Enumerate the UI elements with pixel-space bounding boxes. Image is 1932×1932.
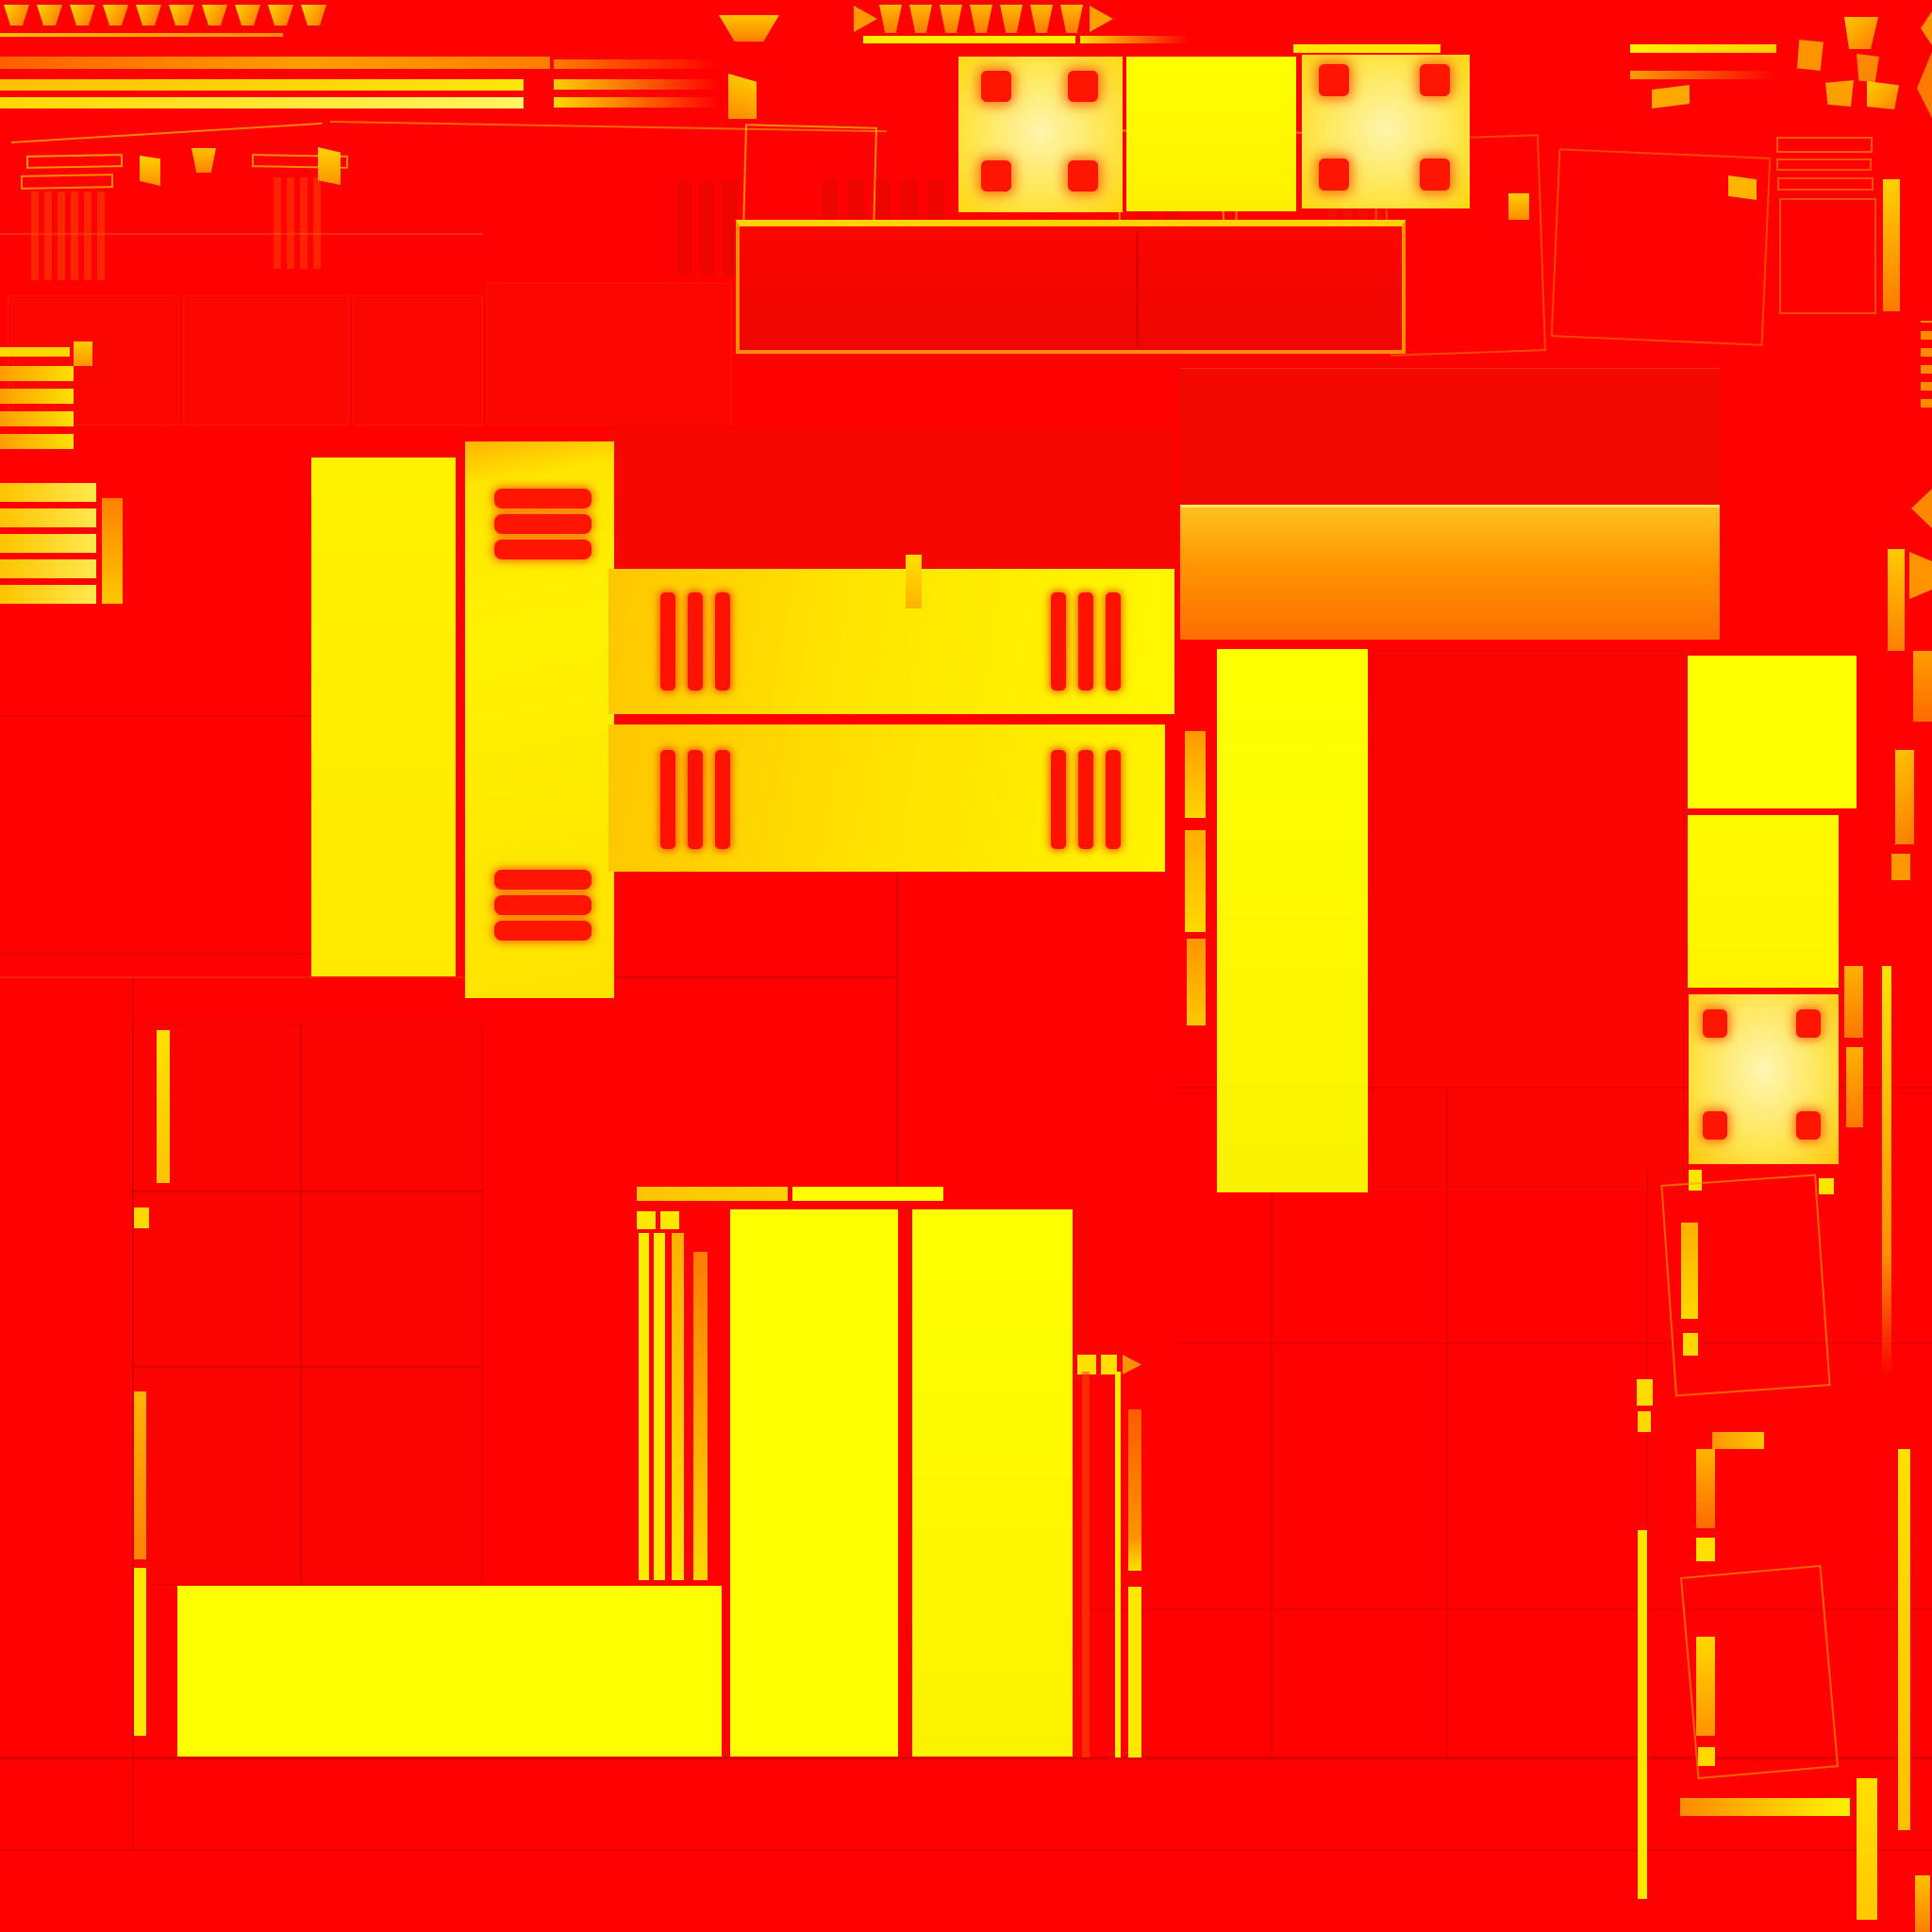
seam-line xyxy=(300,1024,302,1585)
tooth xyxy=(1030,5,1053,33)
sliver xyxy=(1895,750,1914,844)
sliver xyxy=(1683,1333,1698,1356)
edge-notch xyxy=(1913,651,1932,722)
gradient-bar xyxy=(0,508,96,527)
yellow-plate xyxy=(1688,656,1857,808)
rivet-plate-pip xyxy=(1796,1009,1821,1038)
hairline-bar xyxy=(1293,44,1441,53)
red-bar xyxy=(1106,750,1121,849)
hairline-bar xyxy=(0,347,70,357)
sliver xyxy=(1696,1637,1715,1736)
seam-line xyxy=(1446,1087,1448,1757)
tooth xyxy=(970,5,992,33)
sliver xyxy=(672,1233,684,1580)
sliver xyxy=(1891,854,1910,880)
fade-stripe xyxy=(554,97,720,108)
seam-line xyxy=(0,953,311,955)
seam-line xyxy=(896,873,898,1187)
wedge xyxy=(728,74,757,119)
rivet-plate-pip xyxy=(1703,1009,1727,1038)
sliver xyxy=(906,555,922,608)
pillar xyxy=(84,192,92,280)
rivet-plate-pip xyxy=(1420,64,1450,96)
red-panel xyxy=(8,295,179,425)
red-panel xyxy=(132,1024,483,1585)
pillar xyxy=(313,177,321,269)
sliver xyxy=(1898,1449,1910,1830)
sliver xyxy=(660,1211,679,1229)
pillar xyxy=(274,177,281,269)
red-bar xyxy=(494,540,591,559)
bordered-box xyxy=(736,220,1406,354)
wedge xyxy=(1857,54,1879,82)
sliver xyxy=(134,1568,146,1736)
rivet-plate-pip xyxy=(981,71,1011,102)
sliver xyxy=(1888,549,1905,651)
outline-quad xyxy=(1779,198,1876,314)
red-panel xyxy=(1373,651,1684,1192)
sliver xyxy=(1115,1372,1121,1757)
red-panel xyxy=(353,295,483,425)
gradient-bar xyxy=(0,585,96,604)
pillar xyxy=(97,192,105,280)
sliver xyxy=(1819,1178,1834,1194)
sliver xyxy=(1857,1778,1877,1920)
sliver xyxy=(1883,179,1900,311)
wedge xyxy=(1797,40,1824,71)
red-bar xyxy=(1051,592,1066,691)
red-panel xyxy=(183,295,349,425)
red-bar xyxy=(660,592,675,691)
gradient-bar xyxy=(0,389,74,404)
tooth xyxy=(136,5,161,25)
sliver xyxy=(693,1252,708,1580)
red-panel xyxy=(1180,368,1720,506)
gradient-band xyxy=(0,57,550,69)
wedge xyxy=(1825,80,1854,107)
pillar xyxy=(677,181,691,275)
wedge xyxy=(318,147,341,185)
tooth xyxy=(301,5,326,25)
pillar xyxy=(723,181,737,275)
rivet-plate-pip xyxy=(981,160,1011,192)
tooth xyxy=(4,5,29,25)
gradient-bar xyxy=(0,411,74,426)
red-bar xyxy=(494,489,591,508)
tooth xyxy=(940,5,962,33)
red-bar xyxy=(688,592,703,691)
seam-line xyxy=(132,1191,483,1192)
sliver xyxy=(134,1207,149,1228)
sliver xyxy=(102,498,123,604)
sliver xyxy=(654,1233,665,1580)
sliver xyxy=(1915,1875,1930,1932)
sliver xyxy=(1185,830,1206,932)
tooth xyxy=(169,5,194,25)
gradient-bar xyxy=(0,534,96,553)
sliver xyxy=(1844,966,1863,1038)
arrow-glyph xyxy=(854,6,877,32)
tooth-large xyxy=(719,15,779,42)
wedge xyxy=(1844,17,1878,49)
edge-notch xyxy=(1123,1355,1141,1374)
yellow-door xyxy=(730,1209,898,1757)
gradient-band xyxy=(0,79,524,91)
seam-line xyxy=(132,1366,483,1368)
sliver xyxy=(1638,1530,1647,1899)
yellow-column xyxy=(1217,649,1368,1192)
hairline-bar xyxy=(863,36,1075,43)
orange-gradient-box xyxy=(1180,505,1720,640)
rivet-plate-pip xyxy=(1319,158,1349,191)
sliver xyxy=(74,341,92,366)
sliver xyxy=(1696,1449,1715,1528)
tooth xyxy=(1000,5,1023,33)
hairline-bar xyxy=(637,1187,788,1201)
tooth xyxy=(70,5,95,25)
red-bar xyxy=(688,750,703,849)
seam-line xyxy=(0,715,311,717)
outline-bar xyxy=(1777,177,1874,191)
tooth xyxy=(909,5,932,33)
texture-atlas-canvas xyxy=(0,0,1932,1932)
tooth xyxy=(103,5,128,25)
sliver xyxy=(1846,1047,1863,1127)
tooth xyxy=(879,5,902,33)
pillar xyxy=(31,192,39,280)
gradient-band xyxy=(1712,1432,1764,1449)
outline-bar xyxy=(1776,137,1873,153)
sliver xyxy=(1637,1379,1653,1406)
hairline-bar xyxy=(1630,44,1776,53)
wedge xyxy=(1652,85,1690,108)
sliver xyxy=(134,1391,146,1559)
tooth xyxy=(235,5,260,25)
arrow-glyph xyxy=(1090,6,1113,32)
sliver xyxy=(1187,939,1206,1025)
rivet-plate-pip xyxy=(1420,158,1450,191)
sliver xyxy=(1681,1223,1698,1319)
tooth xyxy=(202,5,227,25)
sliver xyxy=(1128,1409,1141,1571)
pillar xyxy=(44,192,52,280)
edge-notch xyxy=(1917,52,1932,118)
fade-stripe xyxy=(554,59,720,69)
red-bar xyxy=(494,514,591,534)
sliver xyxy=(637,1211,656,1229)
yellow-plate xyxy=(1126,57,1296,211)
wedge xyxy=(1508,193,1529,220)
sliver xyxy=(1882,966,1891,1377)
gradient-band xyxy=(1680,1798,1850,1816)
pillar xyxy=(71,192,78,280)
sliver xyxy=(1128,1587,1141,1757)
red-bar xyxy=(1078,592,1093,691)
sliver xyxy=(639,1233,649,1580)
rivet-plate-pip xyxy=(1796,1111,1821,1140)
seam-line xyxy=(0,976,481,978)
wedge xyxy=(1728,175,1757,200)
red-bar xyxy=(1106,592,1121,691)
red-panel xyxy=(487,283,732,425)
sliver xyxy=(1082,1372,1090,1757)
outline-bar xyxy=(26,154,123,169)
pillar xyxy=(700,181,714,275)
red-bar xyxy=(494,870,591,890)
edge-notch xyxy=(1911,489,1932,528)
tooth xyxy=(268,5,293,25)
red-bar xyxy=(1051,750,1066,849)
sliver xyxy=(1185,731,1206,818)
seam-line xyxy=(1136,232,1139,345)
wedge xyxy=(140,156,160,186)
hairline-bar xyxy=(792,1187,943,1201)
yellow-slab xyxy=(177,1586,722,1757)
pillar xyxy=(58,192,65,280)
tooth xyxy=(37,5,62,25)
red-bar xyxy=(715,592,730,691)
yellow-door xyxy=(912,1209,1073,1757)
wedge xyxy=(192,148,216,173)
red-bar xyxy=(715,750,730,849)
gradient-bar xyxy=(0,559,96,578)
edge-stack xyxy=(1921,321,1932,408)
yellow-column xyxy=(311,458,456,976)
red-bar xyxy=(494,895,591,915)
red-panel xyxy=(608,429,1174,569)
fade-stripe xyxy=(554,79,720,90)
rivet-plate-pip xyxy=(1319,64,1349,96)
sliver xyxy=(1698,1747,1715,1766)
edge-notch xyxy=(1921,11,1932,45)
pillar xyxy=(300,177,308,269)
outline-bar xyxy=(21,174,113,190)
wedge xyxy=(1867,81,1899,109)
outline-bar xyxy=(1776,158,1872,171)
gradient-band xyxy=(0,97,524,108)
sliver xyxy=(1696,1538,1715,1561)
hairline-bar xyxy=(0,33,283,37)
hairline-bar xyxy=(1080,36,1189,43)
hairline-diagonal xyxy=(11,123,323,143)
rivet-plate-pip xyxy=(1703,1111,1727,1140)
red-bar xyxy=(1078,750,1093,849)
red-bar xyxy=(660,750,675,849)
gradient-bar xyxy=(0,366,74,381)
edge-notch xyxy=(1909,552,1932,599)
tooth xyxy=(1060,5,1083,33)
pillar xyxy=(287,177,294,269)
red-bar xyxy=(494,921,591,941)
gradient-bar xyxy=(0,434,74,449)
rivet-plate-pip xyxy=(1068,160,1098,192)
gradient-bar xyxy=(0,483,96,502)
hairline-bar xyxy=(1630,71,1776,79)
sliver xyxy=(157,1030,170,1183)
rivet-plate-pip xyxy=(1068,71,1098,102)
yellow-plate xyxy=(1688,815,1839,988)
sliver xyxy=(1638,1411,1651,1432)
